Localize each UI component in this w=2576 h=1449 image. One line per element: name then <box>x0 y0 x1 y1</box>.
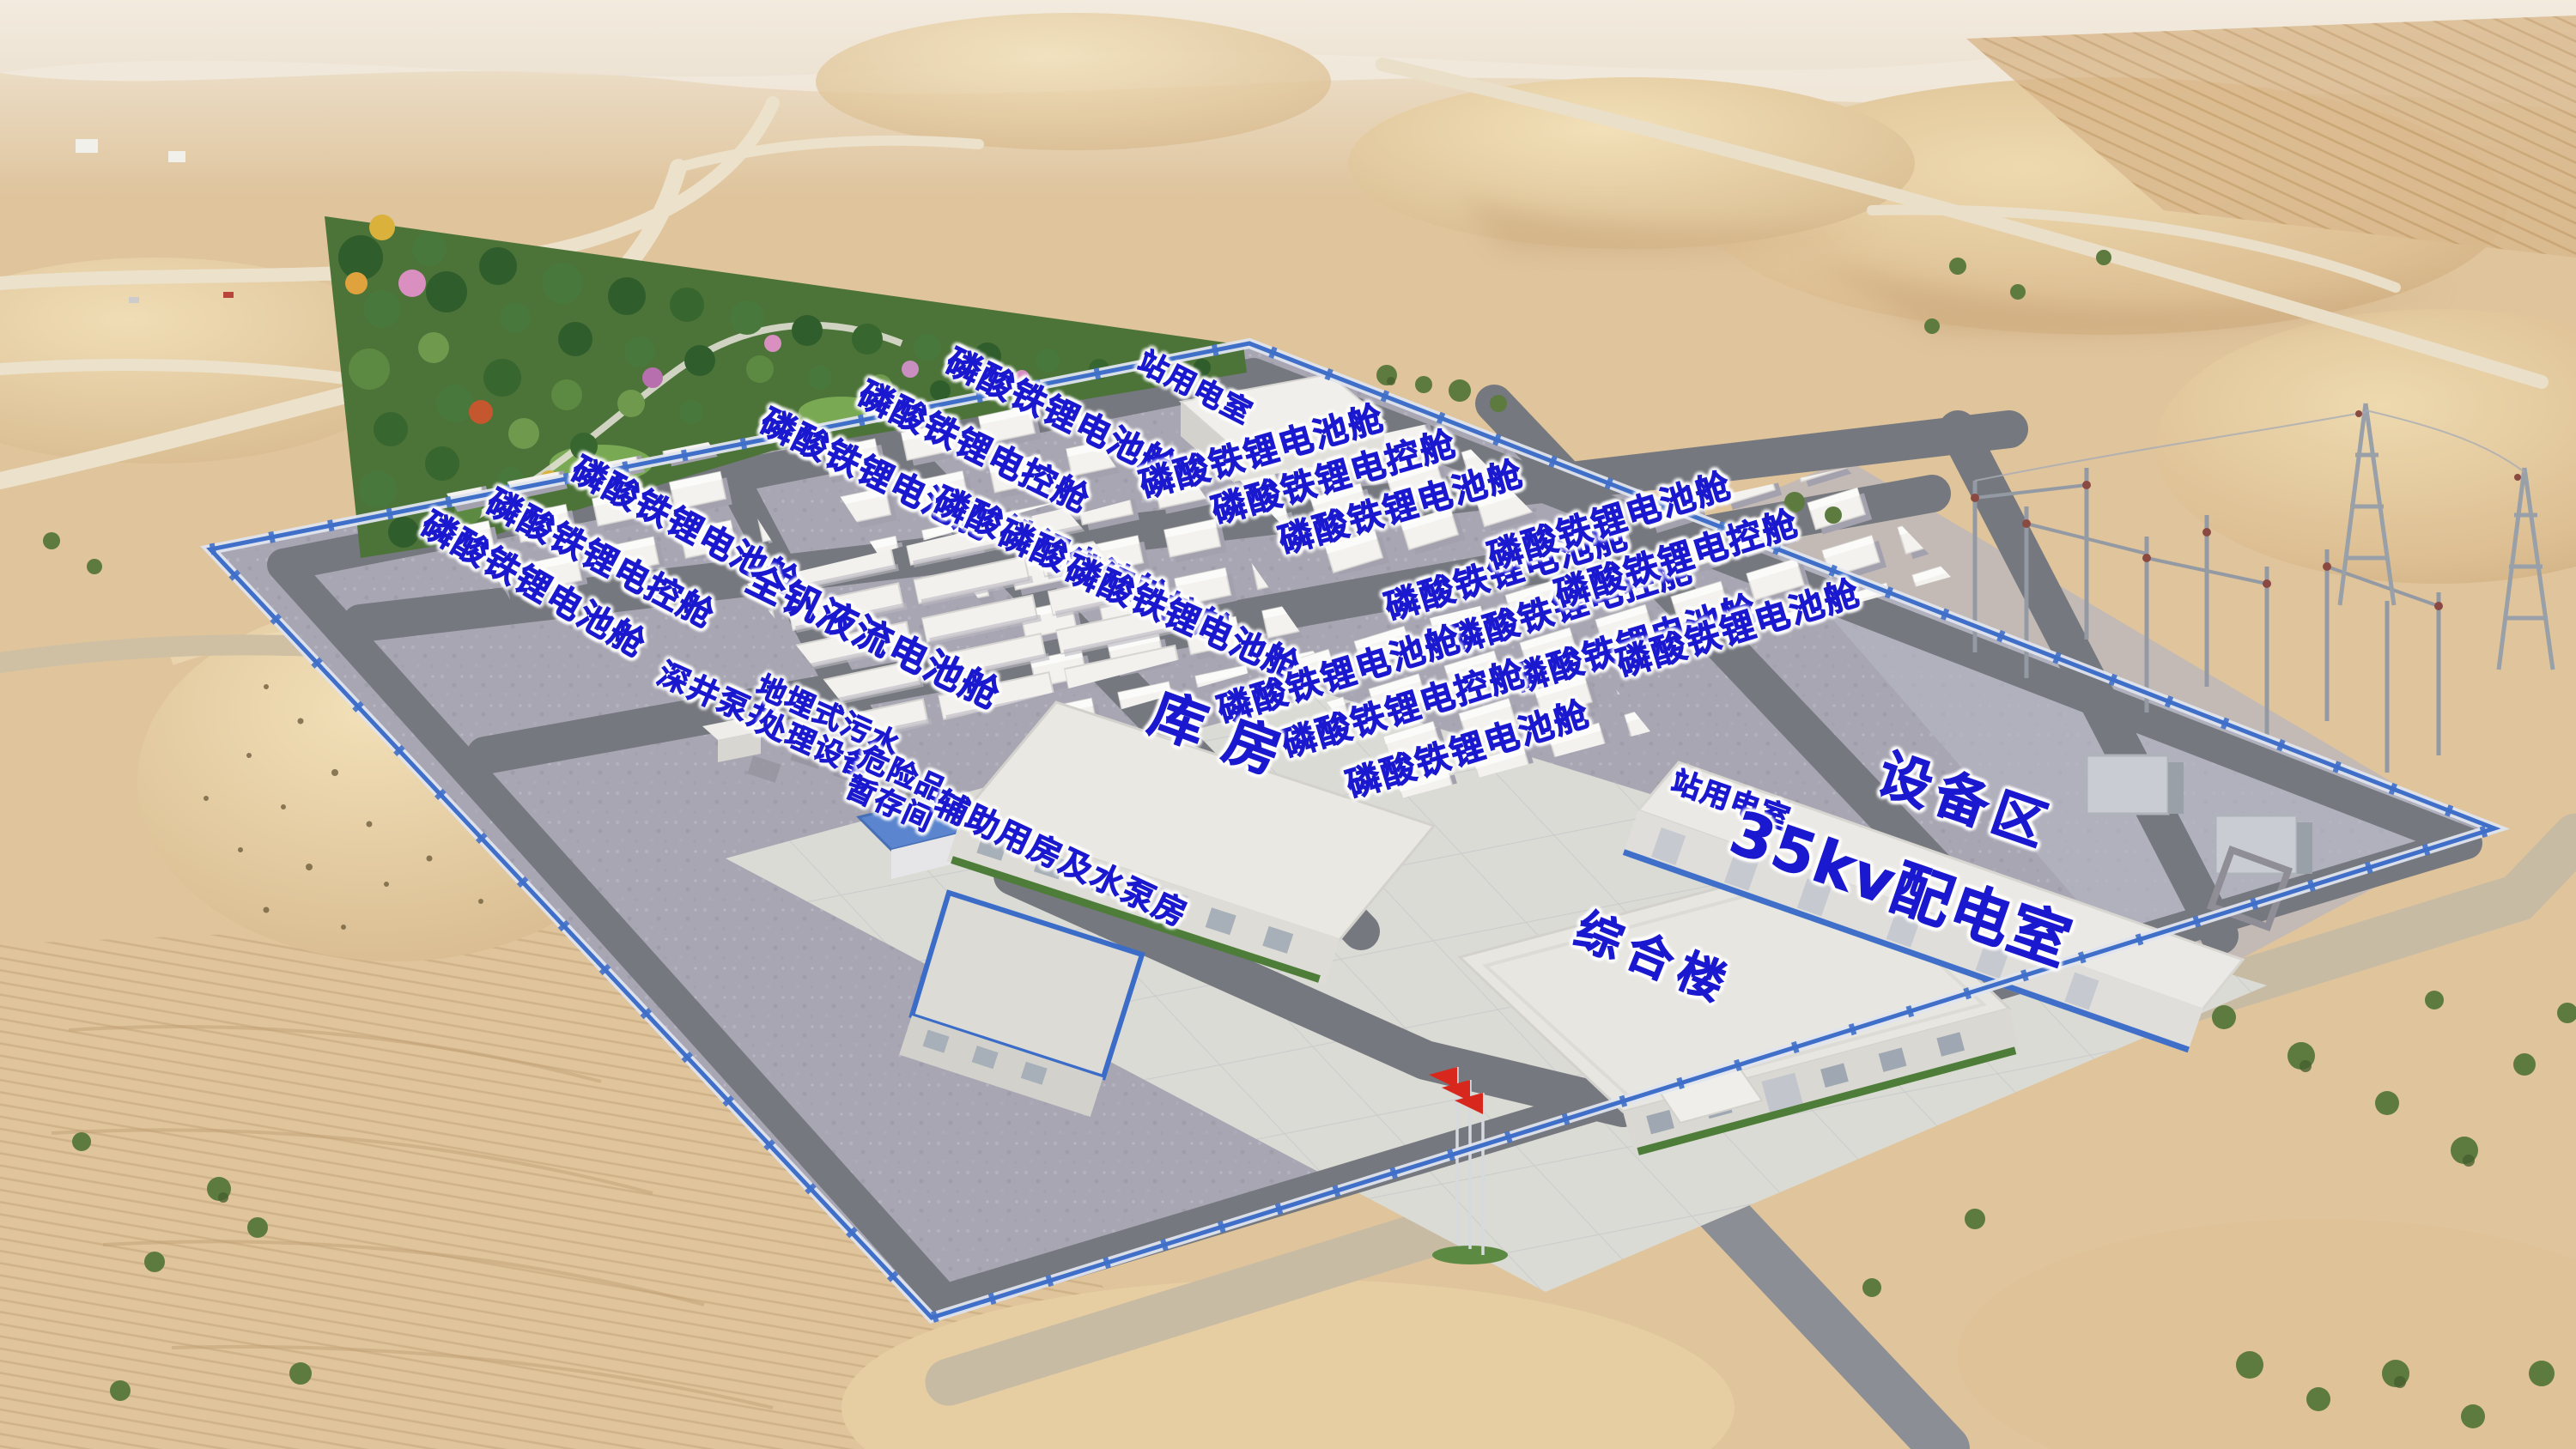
label-station-power-room-top: 站用电室 <box>1133 346 1258 431</box>
label-complex-building: 综合楼 <box>1568 904 1741 1014</box>
label-lfp-battery-cabin: 磷酸铁锂电池舱 <box>1060 550 1306 688</box>
annotation-labels: 磷酸铁锂电池舱 磷酸铁锂电控舱 磷酸铁锂电池舱 磷酸铁锂电池舱 磷酸铁锂电控舱 … <box>0 0 2576 1449</box>
label-auxiliary-pump-house: 辅助用房及水泵房 <box>929 785 1194 934</box>
aerial-site-rendering: 磷酸铁锂电池舱 磷酸铁锂电控舱 磷酸铁锂电池舱 磷酸铁锂电池舱 磷酸铁锂电控舱 … <box>0 0 2576 1449</box>
label-equipment-area: 设备区 <box>1870 743 2060 858</box>
